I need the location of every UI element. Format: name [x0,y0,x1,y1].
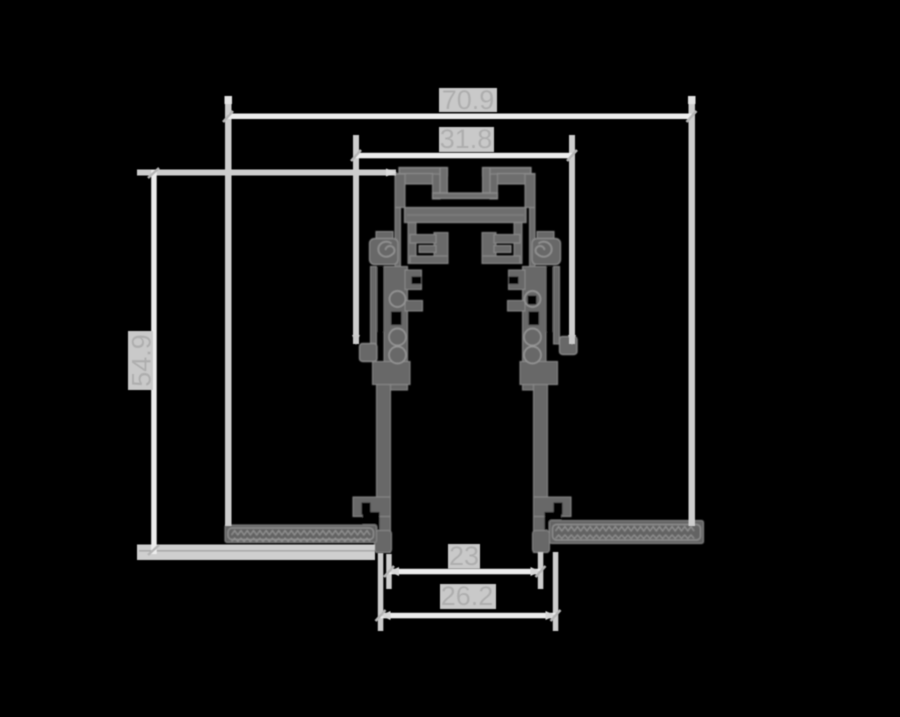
svg-text:54.9: 54.9 [127,334,157,387]
svg-text:26.2: 26.2 [441,581,494,611]
svg-text:31.8: 31.8 [440,124,493,154]
svg-text:70.9: 70.9 [442,85,495,115]
svg-text:23: 23 [449,541,479,571]
